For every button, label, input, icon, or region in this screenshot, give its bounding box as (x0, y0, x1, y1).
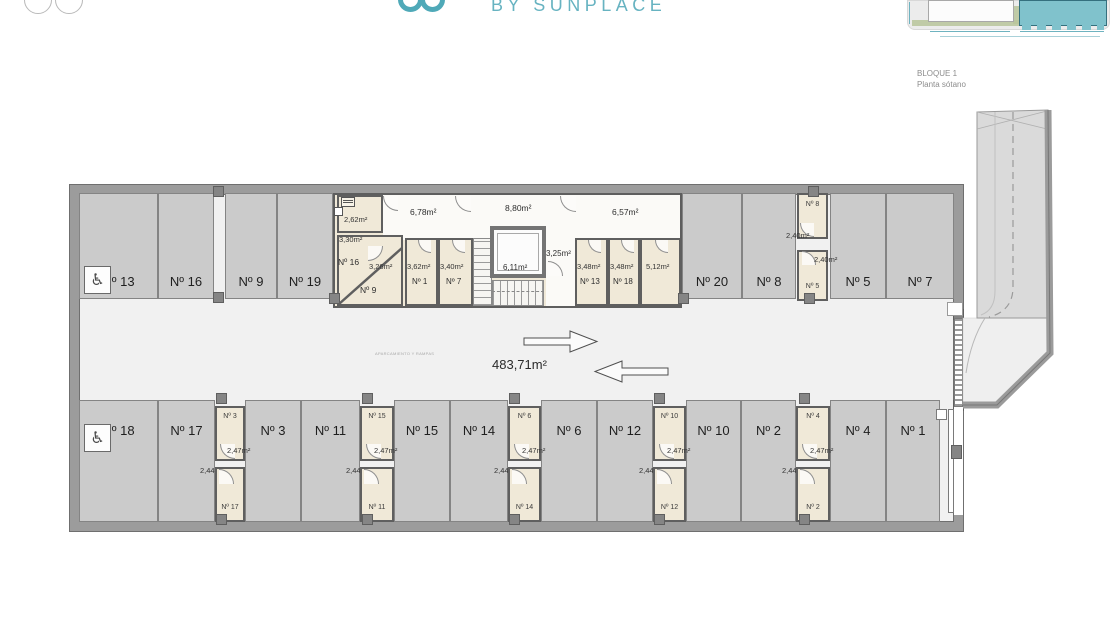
stall-number: Nº 6 (542, 423, 596, 438)
corridor-area: 8,80m² (505, 203, 531, 213)
stall-number: Nº 11 (302, 423, 359, 438)
parking-stall: Nº 2 (741, 400, 796, 522)
corridor-area: 6,57m² (612, 207, 638, 217)
direction-arrow-right-icon (523, 330, 599, 353)
column-pillar (329, 293, 340, 304)
block-label: BLOQUE 1 (917, 69, 966, 80)
room-area: 3,30m² (339, 235, 362, 244)
parking-stall: Nº 3 (245, 400, 301, 522)
storage-id: Nº 7 (446, 277, 461, 286)
stall-number: Nº 2 (742, 423, 795, 438)
room-area: 2,40m² (786, 231, 809, 240)
landing-area: 3,25m² (546, 249, 571, 258)
room-area: 3,26m² (369, 262, 392, 271)
storage-id: Nº 8 (797, 201, 828, 208)
stairs (492, 280, 544, 306)
room-area: 2,47m² (522, 446, 545, 455)
brand-logo-icon (420, 0, 445, 12)
storage-id: Nº 12 (653, 504, 686, 511)
column-pillar (799, 393, 810, 404)
room-area: 2,47m² (810, 446, 833, 455)
wheelchair-icon: ♿ (84, 424, 111, 452)
parking-stall: Nº 8 (742, 193, 796, 299)
column-pillar (362, 393, 373, 404)
parking-stall: Nº 18 (79, 400, 158, 522)
vehicle-ramp (955, 95, 1110, 425)
column-pillar (213, 186, 224, 197)
minimap-block-2 (928, 0, 1014, 22)
storage-id: Nº 11 (360, 504, 394, 511)
storage-id: Nº 4 (796, 413, 830, 420)
column-pillar (216, 514, 227, 525)
parking-stall: Nº 16 (158, 193, 214, 299)
decorative-circle-icon (24, 0, 52, 14)
parking-stall: Nº 14 (450, 400, 508, 522)
room-area: 5,12m² (646, 262, 669, 271)
column-pillar (213, 292, 224, 303)
column-pillar (808, 186, 819, 197)
column-pillar (804, 293, 815, 304)
parking-stall: Nº 5 (830, 193, 886, 299)
direction-arrow-left-icon (593, 360, 669, 383)
minimap-caption: BLOQUE 1 Planta sótano (917, 69, 966, 91)
stall-number: Nº 3 (246, 423, 300, 438)
brand-name: BY SUNPLACE (491, 0, 666, 16)
stall-number: Nº 7 (887, 274, 953, 289)
parking-stall: Nº 4 (830, 400, 886, 522)
column-pillar (216, 393, 227, 404)
storage-id: Nº 10 (653, 413, 686, 420)
room-area: 2,47m² (374, 446, 397, 455)
column-pillar (799, 514, 810, 525)
column-pillar (951, 445, 962, 459)
storage-id: Nº 9 (360, 285, 376, 295)
stall-number: Nº 5 (831, 274, 885, 289)
parking-stall: Nº 9 (225, 193, 277, 299)
minimap-dimension-line (930, 31, 1010, 32)
storage-id: Nº 14 (508, 504, 541, 511)
stair-cut-line (492, 291, 544, 292)
storage-id: Nº 3 (215, 413, 245, 420)
stall-number: Nº 19 (278, 274, 332, 289)
storage-id: Nº 17 (215, 504, 245, 511)
parking-stall: Nº 19 (277, 193, 333, 299)
meter-box-icon (334, 207, 343, 216)
floor-label: Planta sótano (917, 80, 966, 91)
parking-stall: Nº 15 (394, 400, 450, 522)
stall-number: Nº 1 (887, 423, 939, 438)
storage-id: Nº 16 (338, 257, 359, 267)
wheelchair-icon: ♿ (84, 266, 111, 294)
stall-number: Nº 8 (743, 274, 795, 289)
room-area: 2,47m² (227, 446, 250, 455)
parking-stall: Nº 7 (886, 193, 954, 299)
stall-number: Nº 9 (226, 274, 276, 289)
stall-number: Nº 20 (683, 274, 741, 289)
aisle-note: APARCAMIENTO Y RAMPAS (375, 351, 434, 356)
stall-number: Nº 17 (159, 423, 214, 438)
parking-stall: Nº 10 (686, 400, 741, 522)
gate-motor-box (936, 409, 947, 420)
parking-stall: Nº 20 (682, 193, 742, 299)
storage-id: Nº 1 (412, 277, 427, 286)
storage-id: Nº 13 (580, 277, 600, 286)
stall-number: Nº 15 (395, 423, 449, 438)
parking-stall: Nº 12 (597, 400, 653, 522)
room-area: 3,48m² (610, 262, 633, 271)
parking-stall: Nº 1 (886, 400, 940, 522)
column-pillar (678, 293, 689, 304)
elevator-area: 6,11m² (503, 263, 527, 272)
stall-number: Nº 16 (159, 274, 213, 289)
storage-id: Nº 18 (613, 277, 633, 286)
room-area: 3,40m² (440, 262, 463, 271)
room-area: 3,62m² (407, 262, 430, 271)
stall-number: Nº 12 (598, 423, 652, 438)
minimap-block-1-terraces (1022, 25, 1104, 30)
room-area: 3,48m² (577, 262, 600, 271)
decorative-circle-icon (55, 0, 83, 14)
storage-id: Nº 15 (360, 413, 394, 420)
column-pillar (509, 514, 520, 525)
total-area-label: 483,71m² (492, 357, 547, 372)
electrical-panel-icon (341, 197, 355, 207)
storage-id: Nº 2 (796, 504, 830, 511)
column-pillar (654, 514, 665, 525)
minimap-block-1-highlighted (1019, 0, 1107, 26)
parking-stall: Nº 6 (541, 400, 597, 522)
garage-gate (948, 409, 954, 513)
storage-id: Nº 6 (508, 413, 541, 420)
stall-number: Nº 10 (687, 423, 740, 438)
minimap-dimension-line (1020, 31, 1104, 32)
column-pillar (509, 393, 520, 404)
minimap-dimension-line (909, 2, 910, 24)
room-area: 2,62m² (344, 215, 367, 224)
parking-stall: Nº 11 (301, 400, 360, 522)
corridor-area: 6,78m² (410, 207, 436, 217)
column-pillar (654, 393, 665, 404)
parking-stall: Nº 17 (158, 400, 215, 522)
column-pillar (362, 514, 373, 525)
storage-id: Nº 5 (797, 283, 828, 290)
stall-number: Nº 14 (451, 423, 507, 438)
room-area: 2,47m² (667, 446, 690, 455)
minimap-dimension-line (940, 36, 1100, 37)
stall-number: Nº 4 (831, 423, 885, 438)
room-area: 2,40m² (814, 255, 837, 264)
